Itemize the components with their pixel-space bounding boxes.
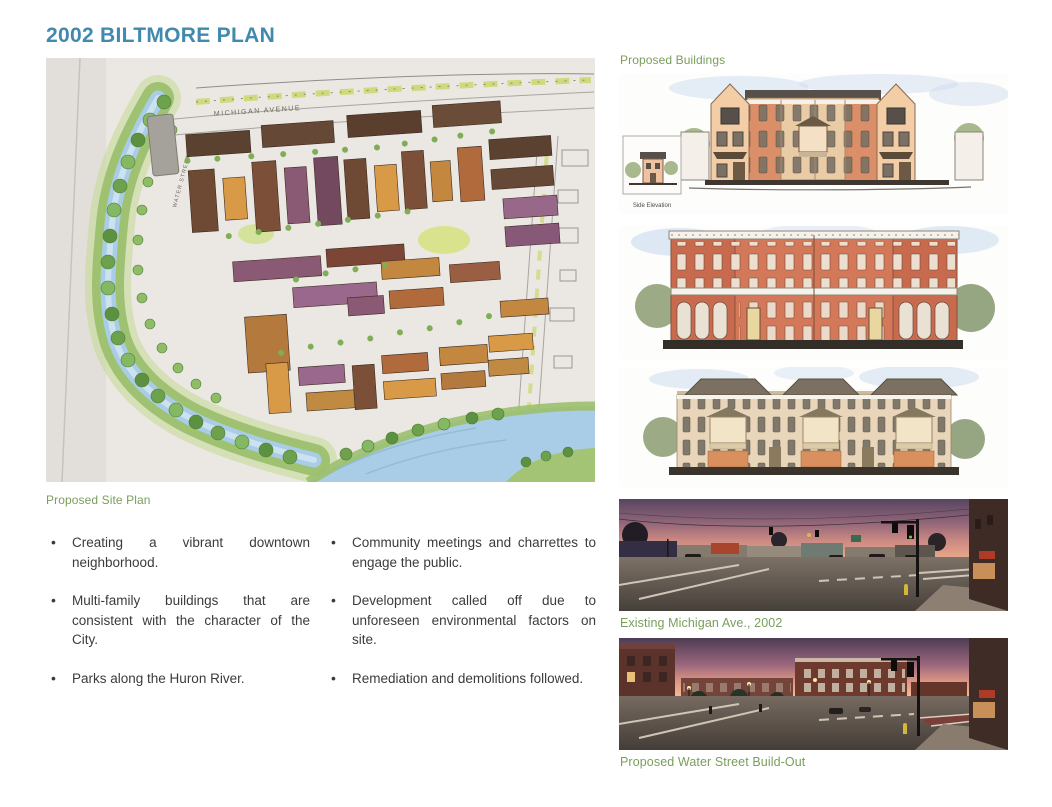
site-plan-caption: Proposed Site Plan bbox=[46, 493, 151, 507]
build-out-caption: Proposed Water Street Build-Out bbox=[620, 755, 805, 769]
bullet-item: Creating a vibrant downtown neighborhood… bbox=[46, 533, 310, 572]
proposed-build-out-rendering bbox=[619, 638, 1008, 750]
bullet-item: Community meetings and charrettes to eng… bbox=[326, 533, 596, 572]
bullet-item: Multi-family buildings that are consiste… bbox=[46, 591, 310, 650]
bullet-lists: Creating a vibrant downtown neighborhood… bbox=[46, 533, 596, 688]
bullet-item: Development called off due to unforeseen… bbox=[326, 591, 596, 650]
elevation-drawing-2 bbox=[619, 226, 1008, 359]
proposed-buildings-label: Proposed Buildings bbox=[620, 53, 725, 67]
site-plan-illustration: MICHIGAN AVENUE bbox=[46, 58, 595, 482]
elevation-drawing-3 bbox=[619, 367, 1008, 487]
existing-michigan-ave-photo bbox=[619, 499, 1008, 611]
site-plan-svg: MICHIGAN AVENUE bbox=[46, 58, 595, 482]
elevation-drawing-1: Side Elevation bbox=[619, 74, 1008, 214]
bullet-item: Parks along the Huron River. bbox=[46, 669, 310, 689]
side-elevation-caption: Side Elevation bbox=[633, 203, 671, 209]
page-title: 2002 BILTMORE PLAN bbox=[46, 24, 275, 48]
bullet-column-left: Creating a vibrant downtown neighborhood… bbox=[46, 533, 310, 688]
bullet-item: Remediation and demolitions followed. bbox=[326, 669, 596, 689]
bullet-column-right: Community meetings and charrettes to eng… bbox=[326, 533, 596, 688]
existing-michigan-ave-caption: Existing Michigan Ave., 2002 bbox=[620, 616, 782, 630]
